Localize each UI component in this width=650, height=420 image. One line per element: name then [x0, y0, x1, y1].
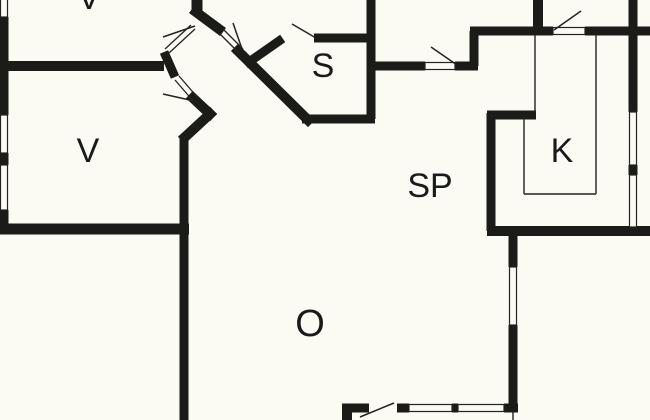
window	[630, 175, 637, 227]
room-label-s: S	[312, 47, 335, 85]
window	[1, 115, 8, 153]
window	[1, 165, 8, 210]
window	[553, 28, 585, 35]
room-label-v: V	[78, 0, 101, 17]
room-label-v: V	[77, 132, 100, 170]
room-label-k: K	[551, 132, 574, 170]
window	[409, 405, 452, 412]
window	[630, 112, 637, 165]
window	[458, 405, 504, 412]
room-label-o: O	[295, 303, 325, 345]
window	[425, 63, 455, 70]
window	[510, 267, 517, 325]
floor-plan: VVSSPKO	[0, 0, 650, 420]
room-label-sp: SP	[407, 167, 452, 205]
floor-plan-drawing: VVSSPKO	[0, 0, 650, 420]
window	[1, 0, 8, 17]
